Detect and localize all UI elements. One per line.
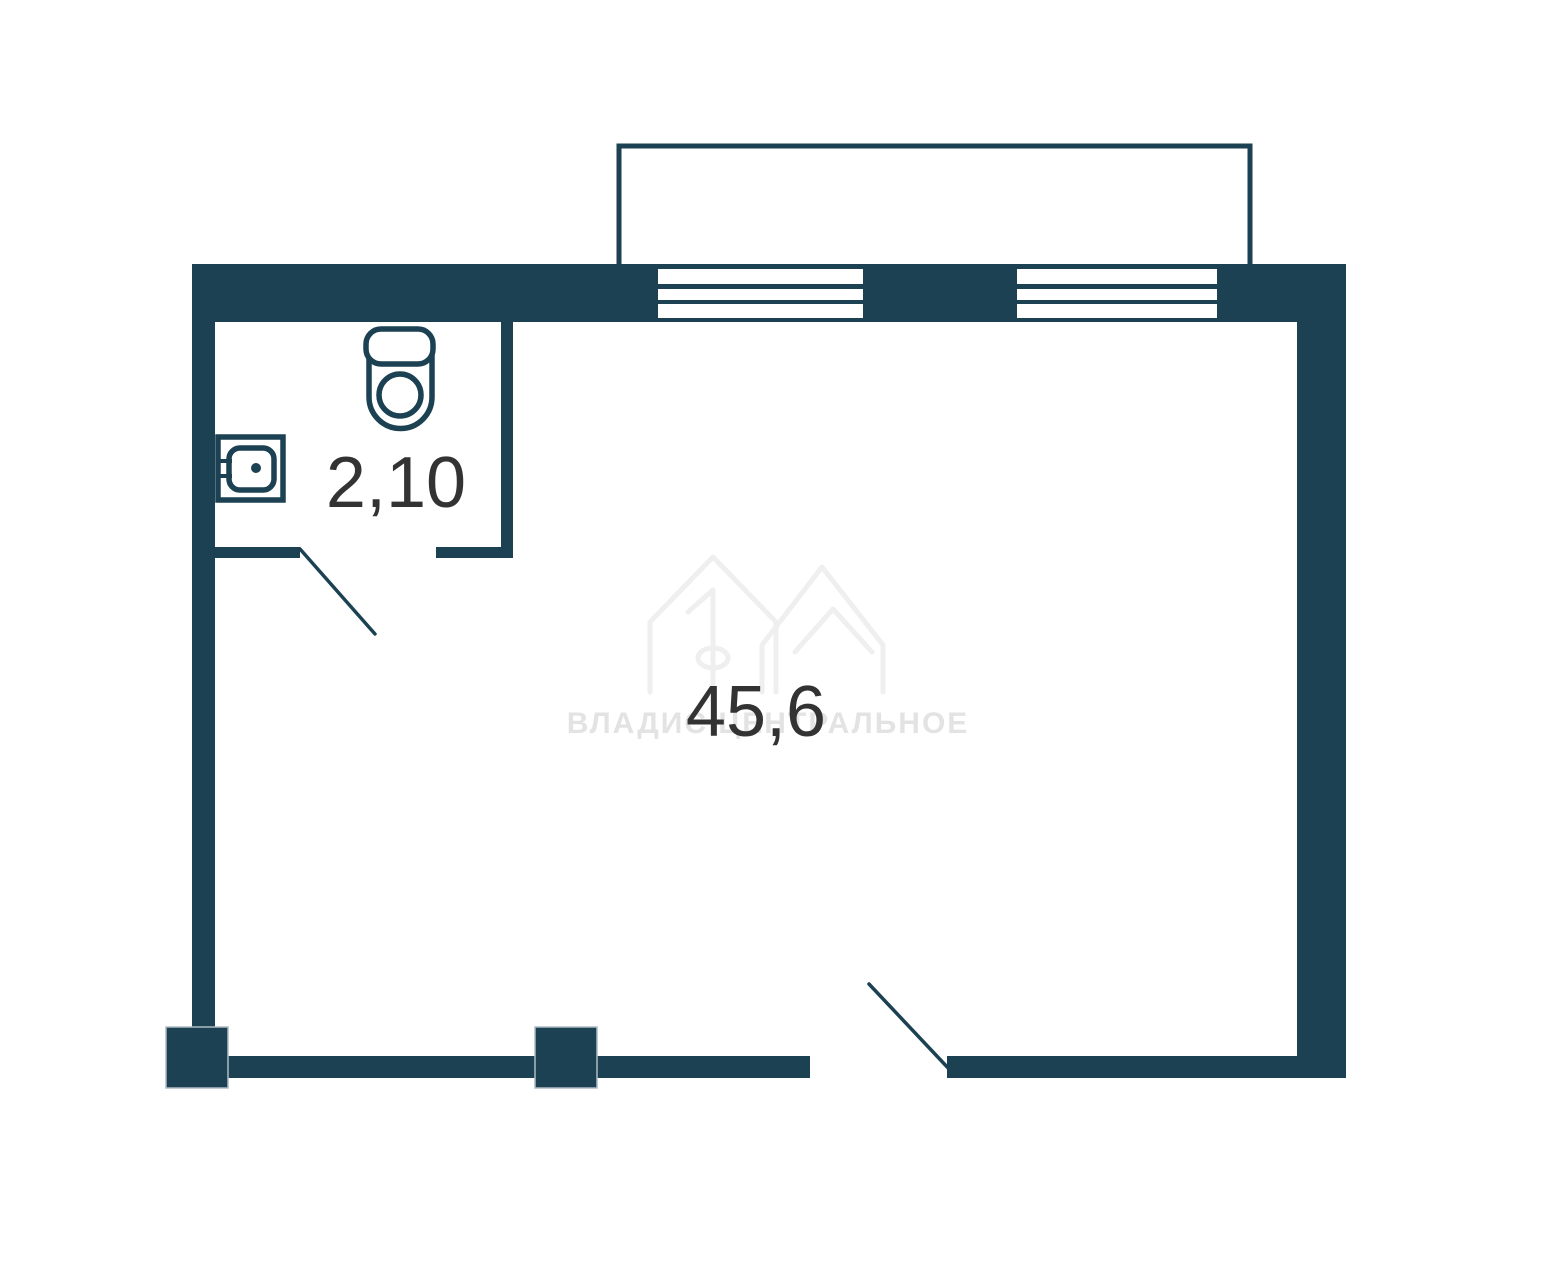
sink-drain bbox=[251, 463, 261, 473]
outer-wall-left bbox=[192, 264, 215, 1027]
bottom-wall-left bbox=[228, 1056, 810, 1078]
bathroom-wall-bottom-right bbox=[436, 547, 513, 558]
window-1-mullion bbox=[658, 284, 863, 289]
balcony-outline bbox=[619, 146, 1250, 266]
bathroom-area-label: 2,10 bbox=[326, 443, 466, 523]
outer-wall-right bbox=[1297, 264, 1346, 1078]
toilet-tank bbox=[366, 329, 433, 364]
toilet-seat-hole bbox=[379, 374, 421, 416]
toilet-icon bbox=[366, 329, 433, 429]
bathroom-wall-bottom-left bbox=[215, 547, 300, 558]
window-2-glass bbox=[1017, 269, 1217, 318]
window-2 bbox=[1017, 269, 1217, 318]
entry-door-swing bbox=[869, 984, 950, 1070]
column-left bbox=[166, 1027, 228, 1088]
window-2-mullion bbox=[1017, 284, 1217, 289]
window-1-glass bbox=[658, 269, 863, 318]
window-1 bbox=[658, 269, 863, 318]
sink-icon bbox=[218, 437, 283, 500]
floor-plan: ВЛАДИС ЦЕНТРАЛЬНОЕ bbox=[0, 0, 1541, 1273]
floor-plan-canvas: ВЛАДИС ЦЕНТРАЛЬНОЕ bbox=[0, 0, 1541, 1273]
bathroom-wall-right bbox=[501, 322, 513, 558]
living-area-label: 45,6 bbox=[686, 672, 826, 752]
window-2-mullion bbox=[1017, 300, 1217, 304]
bathroom-door-swing bbox=[300, 549, 375, 634]
bottom-wall-right bbox=[947, 1056, 1297, 1078]
column-middle bbox=[535, 1027, 597, 1088]
window-1-mullion bbox=[658, 300, 863, 304]
